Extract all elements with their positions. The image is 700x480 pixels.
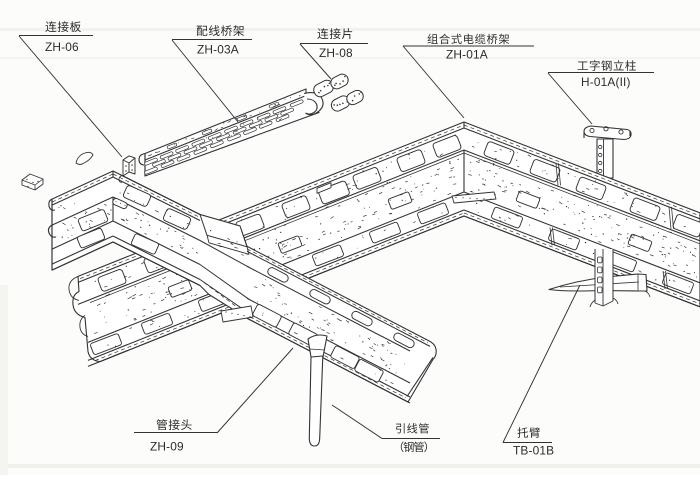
svg-text:ZH-01A: ZH-01A	[446, 48, 488, 62]
svg-text:ZH-09: ZH-09	[150, 440, 184, 454]
svg-text:TB-01B: TB-01B	[513, 444, 554, 458]
svg-text:ZH-06: ZH-06	[45, 40, 79, 54]
svg-text:ZH-08: ZH-08	[319, 46, 353, 60]
svg-text:H-01A(II): H-01A(II)	[581, 75, 631, 89]
svg-text:ZH-03A: ZH-03A	[197, 43, 239, 57]
